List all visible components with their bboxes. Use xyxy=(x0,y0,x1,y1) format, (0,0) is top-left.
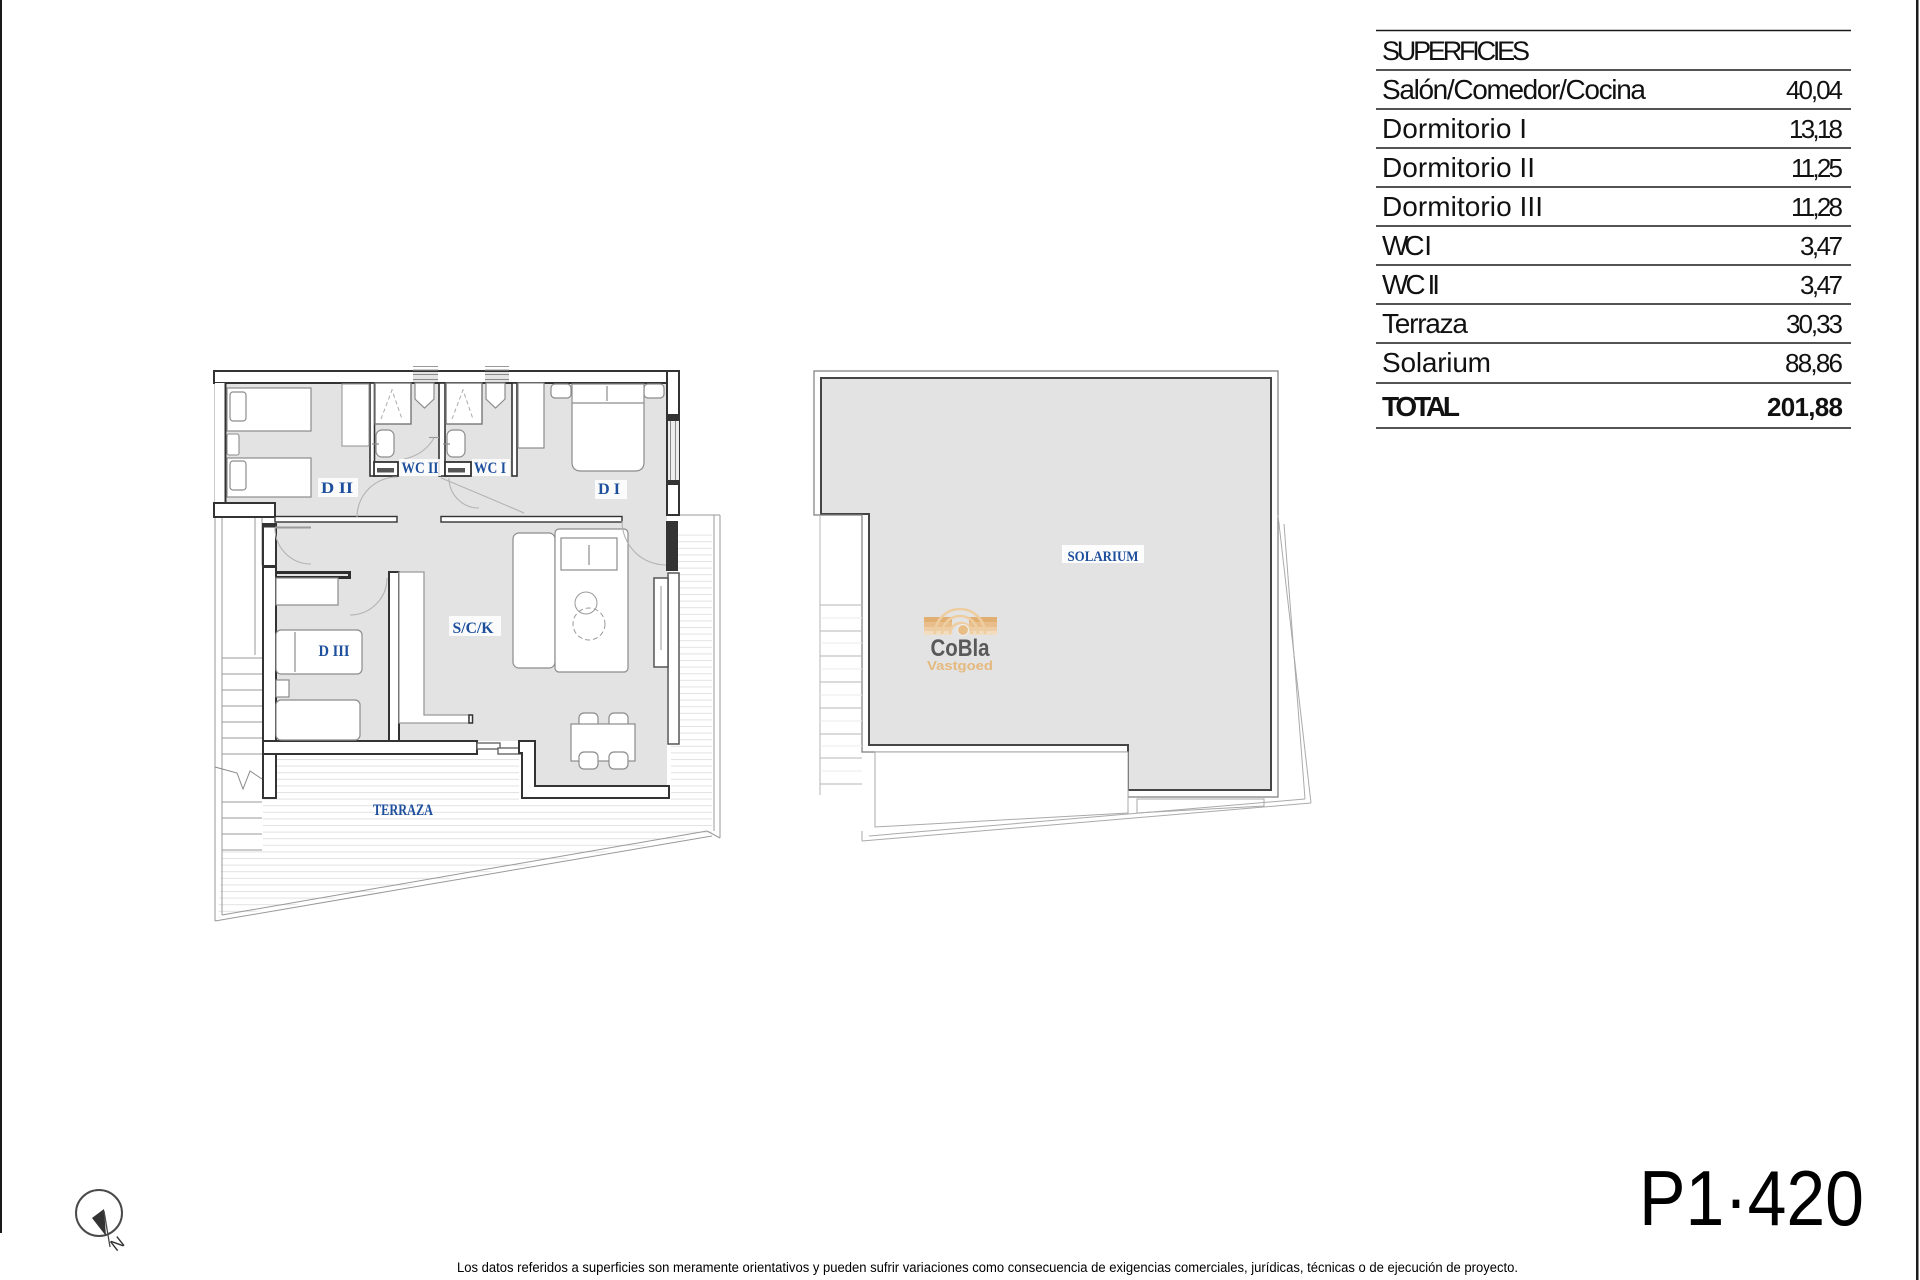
svg-text:Los datos referidos a superfic: Los datos referidos a superficies son me… xyxy=(457,1260,1518,1275)
svg-text:40,04: 40,04 xyxy=(1786,75,1843,105)
svg-text:3,47: 3,47 xyxy=(1800,231,1843,261)
svg-text:11,28: 11,28 xyxy=(1791,192,1843,222)
svg-text:Dormitorio I: Dormitorio I xyxy=(1382,113,1527,144)
svg-text:SUPERFICIES: SUPERFICIES xyxy=(1382,36,1530,66)
svg-text:3,47: 3,47 xyxy=(1800,270,1843,300)
svg-text:P1·420: P1·420 xyxy=(1639,1154,1864,1242)
svg-text:Dormitorio II: Dormitorio II xyxy=(1382,152,1535,183)
svg-text:WC II: WC II xyxy=(1382,269,1440,300)
svg-text:Salón/Comedor/Cocina: Salón/Comedor/Cocina xyxy=(1382,74,1646,105)
svg-text:TOTAL: TOTAL xyxy=(1382,391,1460,422)
svg-text:D I: D I xyxy=(598,481,620,498)
svg-text:TERRAZA: TERRAZA xyxy=(373,802,434,819)
svg-text:Dormitorio III: Dormitorio III xyxy=(1382,191,1543,222)
svg-text:S/C/K: S/C/K xyxy=(453,620,494,637)
svg-text:201,88: 201,88 xyxy=(1767,392,1843,422)
svg-text:D II: D II xyxy=(321,480,353,497)
svg-text:SOLARIUM: SOLARIUM xyxy=(1068,549,1139,565)
svg-text:WC II: WC II xyxy=(402,460,439,477)
svg-text:Vastgoed: Vastgoed xyxy=(927,658,993,673)
svg-text:D III: D III xyxy=(319,643,350,660)
svg-text:13,18: 13,18 xyxy=(1789,114,1843,144)
svg-text:88,86: 88,86 xyxy=(1785,348,1843,378)
svg-text:Solarium: Solarium xyxy=(1382,347,1491,378)
svg-text:11,25: 11,25 xyxy=(1791,153,1843,183)
svg-text:30,33: 30,33 xyxy=(1786,309,1843,339)
svg-text:Terraza: Terraza xyxy=(1382,308,1468,339)
svg-text:WC I: WC I xyxy=(474,460,506,477)
svg-text:WC I: WC I xyxy=(1382,230,1432,261)
